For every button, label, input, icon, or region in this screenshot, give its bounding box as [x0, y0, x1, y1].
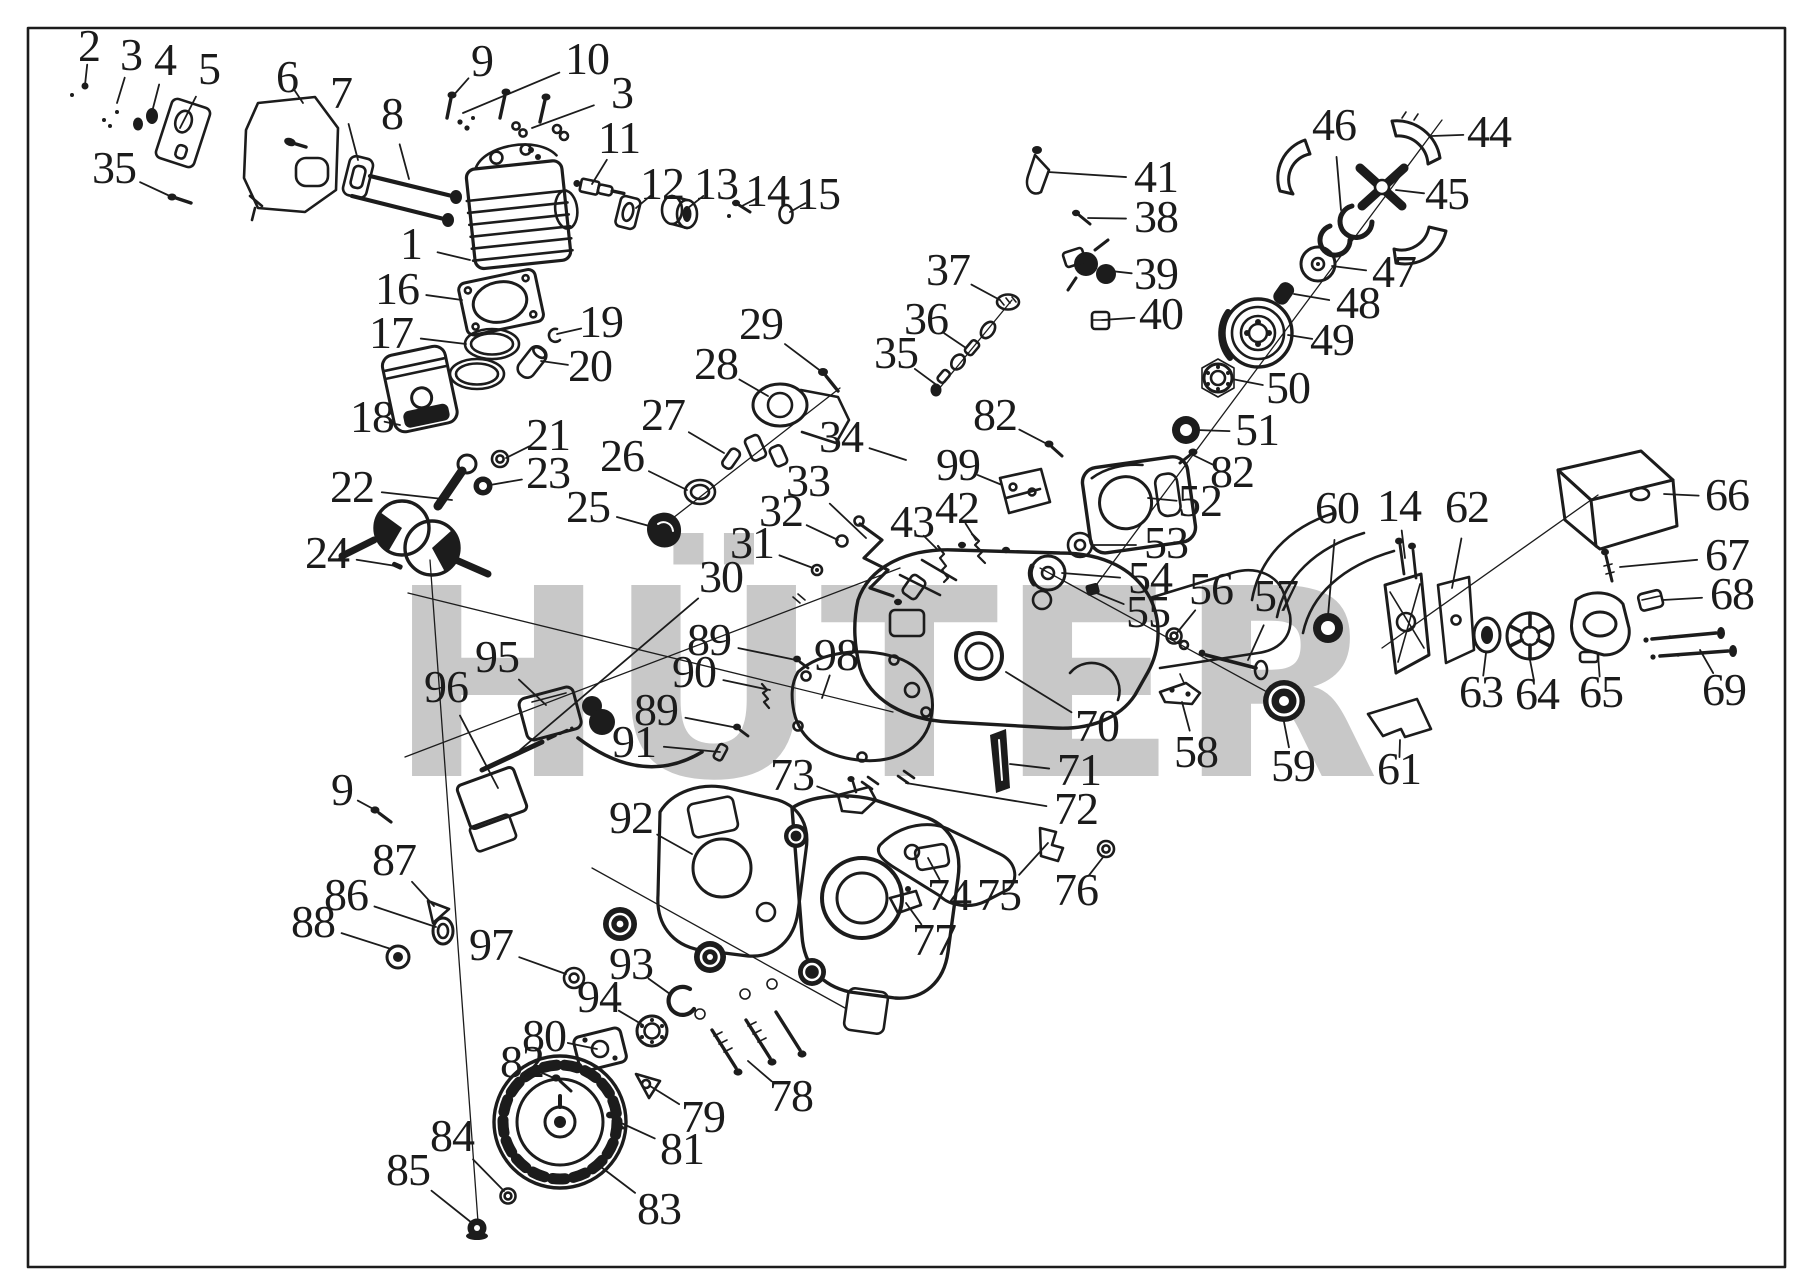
bearing-94 [637, 1016, 667, 1046]
leader-line-17 [421, 339, 466, 344]
leader-line-41 [1048, 172, 1126, 177]
part-label-60: 60 [1315, 485, 1359, 531]
leader-line-97 [519, 957, 566, 974]
leader-line-51 [1196, 430, 1230, 431]
part-label-96: 96 [424, 664, 468, 710]
nut-76 [1098, 841, 1114, 857]
part-label-90: 90 [672, 649, 716, 695]
part-label-9: 9 [471, 38, 493, 84]
leader-line-82 [1019, 430, 1049, 445]
part-label-58: 58 [1174, 729, 1218, 775]
part-label-97: 97 [469, 922, 513, 968]
cylinder-1 [462, 139, 583, 269]
part-label-78: 78 [769, 1073, 813, 1119]
leader-line-86 [374, 906, 436, 927]
leader-line-4 [152, 85, 159, 113]
flange-64 [1507, 613, 1553, 659]
part-label-62: 62 [1445, 484, 1489, 530]
c-clip-93 [669, 987, 694, 1015]
part-label-23: 23 [526, 450, 570, 496]
part-label-4: 4 [154, 37, 176, 83]
exploded-parts-diagram: HÜTER [0, 0, 1809, 1283]
part-label-76: 76 [1054, 867, 1098, 913]
leader-line-9 [452, 78, 469, 97]
part-label-13: 13 [694, 161, 738, 207]
needle-bearing-50 [1202, 359, 1234, 397]
leader-line-46 [1337, 157, 1341, 210]
part-label-3: 3 [611, 70, 633, 116]
oil-pump-body-39 [1062, 240, 1116, 290]
part-label-29: 29 [739, 301, 783, 347]
leader-line-45 [1396, 190, 1424, 193]
leader-line-25 [617, 517, 653, 527]
part-label-88: 88 [291, 899, 335, 945]
part-label-68: 68 [1710, 571, 1754, 617]
part-label-82: 82 [500, 1039, 544, 1085]
bearing-23 [474, 477, 493, 496]
part-label-12: 12 [640, 161, 684, 207]
part-label-20: 20 [568, 343, 612, 389]
part-label-9: 9 [331, 767, 353, 813]
leader-line-16 [426, 295, 462, 300]
leader-line-47 [1332, 266, 1366, 270]
drum-59 [1263, 680, 1305, 722]
leader-line-37 [971, 285, 1000, 300]
part-label-37: 37 [926, 247, 970, 293]
part-label-34: 34 [819, 414, 863, 460]
part-label-30: 30 [699, 554, 743, 600]
part-label-66: 66 [1705, 472, 1749, 518]
part-label-77: 77 [912, 917, 956, 963]
leader-line-85 [431, 1191, 472, 1223]
leader-line-50 [1232, 379, 1263, 385]
part-label-19: 19 [579, 299, 623, 345]
part-label-74: 74 [927, 872, 971, 918]
screw-35-left [168, 194, 192, 204]
part-label-42: 42 [935, 485, 979, 531]
leader-line-99 [978, 475, 1002, 485]
leader-line-44 [1432, 135, 1463, 136]
leader-line-11 [592, 160, 607, 184]
leader-line-79 [650, 1086, 679, 1104]
part-label-94: 94 [577, 974, 621, 1020]
leader-line-35 [140, 182, 172, 197]
part-label-99: 99 [936, 442, 980, 488]
part-label-10: 10 [565, 36, 609, 82]
part-label-3: 3 [120, 32, 142, 78]
leader-line-75 [1019, 843, 1048, 875]
part-label-87: 87 [372, 837, 416, 883]
part-label-18: 18 [350, 394, 394, 440]
muffler-cover-6 [244, 97, 338, 220]
part-label-14: 14 [745, 168, 789, 214]
base-gasket-16 [457, 268, 544, 336]
part-label-69: 69 [1702, 667, 1746, 713]
part-label-70: 70 [1075, 703, 1119, 749]
screw-82-c [552, 1074, 572, 1091]
leader-line-83 [601, 1167, 635, 1193]
part-label-91: 91 [612, 719, 656, 765]
part-label-15: 15 [796, 171, 840, 217]
part-label-45: 45 [1425, 171, 1469, 217]
muffler-inner-plate-5 [154, 97, 211, 168]
part-label-64: 64 [1515, 671, 1559, 717]
part-label-40: 40 [1139, 291, 1183, 337]
oil-pump-worm-37 [997, 295, 1019, 310]
part-label-6: 6 [276, 54, 298, 100]
part-label-84: 84 [430, 1113, 474, 1159]
part-label-95: 95 [475, 634, 519, 680]
part-label-59: 59 [1271, 743, 1315, 789]
pawl-79 [636, 1074, 660, 1098]
part-label-7: 7 [330, 70, 352, 116]
leader-line-34 [870, 448, 906, 460]
diagram-artwork: HÜTER [0, 0, 1809, 1283]
spacer-68 [1637, 589, 1663, 611]
clutch-shoe-44 [1392, 112, 1440, 164]
part-label-83: 83 [637, 1186, 681, 1232]
part-label-35: 35 [874, 330, 918, 376]
part-label-24: 24 [305, 530, 349, 576]
part-label-35: 35 [92, 145, 136, 191]
leader-line-3 [117, 78, 125, 103]
grommet-86 [433, 918, 453, 944]
part-label-8: 8 [381, 91, 403, 137]
washer-21 [492, 451, 508, 467]
part-label-72: 72 [1054, 786, 1098, 832]
part-label-75: 75 [977, 872, 1021, 918]
part-label-14: 14 [1377, 483, 1421, 529]
part-label-11: 11 [598, 115, 640, 161]
part-label-81: 81 [660, 1126, 704, 1172]
leader-line-66 [1664, 494, 1699, 496]
starter-bolts-78 [695, 979, 807, 1076]
piston-rings-17 [450, 329, 519, 389]
part-label-44: 44 [1467, 109, 1511, 155]
washer-47 [1301, 247, 1335, 281]
screw-38 [1072, 210, 1090, 224]
part-label-2: 2 [78, 23, 100, 69]
part-label-22: 22 [330, 464, 374, 510]
leader-line-1 [438, 252, 470, 260]
part-label-26: 26 [600, 433, 644, 479]
carb-holder-65 [1572, 593, 1630, 662]
part-label-16: 16 [375, 266, 419, 312]
part-label-65: 65 [1579, 669, 1623, 715]
part-label-85: 85 [386, 1147, 430, 1193]
part-label-17: 17 [369, 310, 413, 356]
clutch-shoe-left [1278, 140, 1310, 194]
part-label-46: 46 [1312, 102, 1356, 148]
leader-line-68 [1663, 598, 1702, 600]
part-label-55: 55 [1126, 589, 1170, 635]
part-label-56: 56 [1189, 566, 1233, 612]
part-label-92: 92 [609, 795, 653, 841]
part-label-28: 28 [694, 341, 738, 387]
leader-line-87 [412, 882, 434, 906]
leader-line-7 [349, 124, 358, 160]
air-box-66 [1558, 451, 1677, 549]
part-label-43: 43 [890, 499, 934, 545]
leader-line-26 [649, 471, 687, 490]
oil-seal-60 [1313, 613, 1343, 643]
part-label-5: 5 [198, 46, 220, 92]
leader-line-38 [1088, 218, 1126, 219]
part-label-57: 57 [1254, 573, 1298, 619]
small-fasteners-cluster [70, 83, 158, 131]
screw-67 [1601, 549, 1614, 581]
part-label-73: 73 [770, 752, 814, 798]
leader-line-84 [473, 1159, 504, 1191]
part-label-61: 61 [1377, 746, 1421, 792]
leader-line-35 [915, 369, 938, 386]
leader-line-19 [557, 329, 581, 335]
part-label-98: 98 [814, 632, 858, 678]
clutch-springs-46 [1320, 206, 1372, 255]
plug-gasket-12 [614, 195, 641, 230]
throttle-lever-41 [1027, 146, 1049, 194]
part-label-25: 25 [566, 484, 610, 530]
leader-line-88 [342, 933, 391, 949]
part-label-1: 1 [400, 221, 422, 267]
leader-line-29 [785, 344, 826, 375]
gasket-62 [1438, 577, 1474, 663]
leader-line-94 [619, 1011, 643, 1025]
leader-line-67 [1620, 560, 1697, 567]
clutch-drum-49 [1221, 299, 1292, 367]
part-label-38: 38 [1134, 194, 1178, 240]
circlip-19 [549, 329, 560, 342]
leader-line-40 [1102, 318, 1134, 320]
part-label-63: 63 [1459, 669, 1503, 715]
grommet-63 [1474, 618, 1500, 652]
part-label-27: 27 [641, 392, 685, 438]
bracket-77 [890, 886, 921, 913]
leader-line-20 [541, 361, 568, 365]
leader-line-23 [490, 480, 522, 486]
part-label-49: 49 [1310, 317, 1354, 363]
leader-line-27 [689, 432, 724, 453]
chain-guide-plate-99 [1000, 469, 1050, 513]
bolts-69 [1643, 627, 1737, 660]
ring-26 [685, 480, 715, 504]
part-label-82: 82 [973, 392, 1017, 438]
leader-line-8 [400, 144, 409, 179]
spark-plug-11 [572, 177, 625, 200]
filter-bracket-60 [1385, 574, 1429, 673]
leader-line-9 [358, 801, 377, 811]
screw-82-a [1045, 441, 1063, 457]
